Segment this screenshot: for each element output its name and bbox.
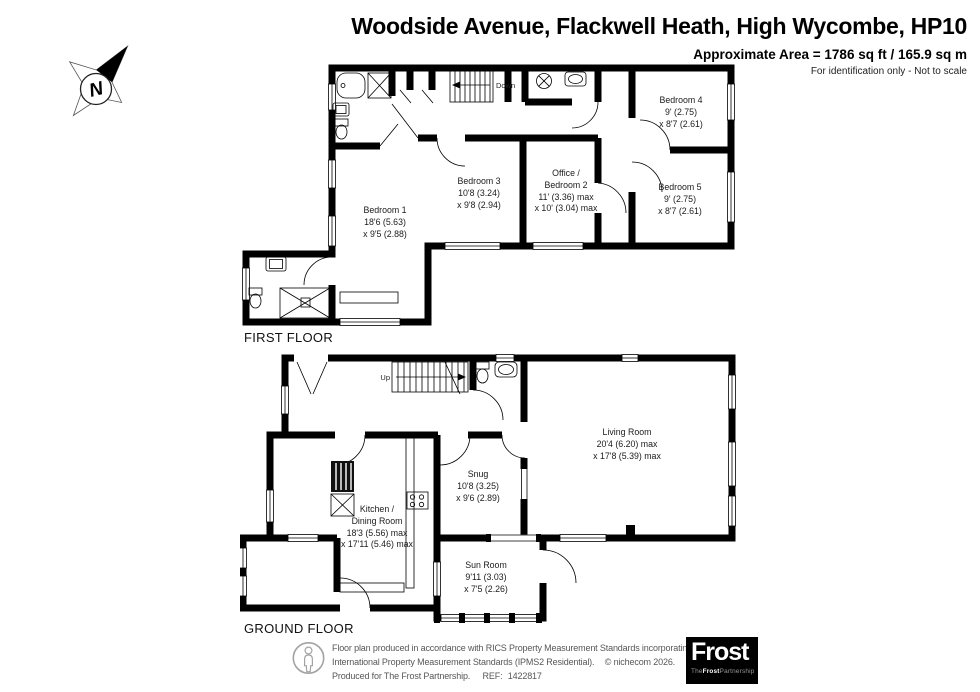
frost-logo-main: Frost [691, 639, 758, 665]
ground-floor-label: GROUND FLOOR [244, 621, 354, 636]
sunroom-door-gap [540, 550, 547, 583]
compass-rose: N [36, 32, 161, 140]
room-label-office-bedroom-2: Office /Bedroom 2 11' (3.36) maxx 10' (3… [516, 168, 616, 215]
footer-line-3: Produced for The Frost Partnership. REF:… [332, 669, 702, 683]
sunroom-bay-windows [434, 613, 542, 623]
kitchen-door-gap [340, 605, 370, 612]
room-label-snug: Snug 10'8 (3.25)x 9'6 (2.89) [428, 469, 528, 504]
living-room-pier [626, 525, 635, 535]
room-label-living-room: Living Room 20'4 (6.20) maxx 17'8 (5.39)… [577, 427, 677, 462]
room-label-kitchen-dining: Kitchen /Dining Room 18'3 (5.56) maxx 17… [327, 504, 427, 551]
frost-logo-sub: TheFrostPartnership [691, 668, 758, 675]
room-label-bedroom-1: Bedroom 1 18'6 (5.63)x 9'5 (2.88) [335, 205, 435, 240]
room-label-sun-room: Sun Room 9'11 (3.03)x 7'5 (2.26) [436, 560, 536, 595]
porch-opening [294, 354, 328, 362]
frost-partnership-logo: Frost TheFrostPartnership [686, 637, 758, 684]
room-label-bedroom-3: Bedroom 3 10'8 (3.24)x 9'8 (2.94) [429, 176, 529, 211]
footer-line-2: International Property Measurement Stand… [332, 655, 702, 669]
page-title: Woodside Avenue, Flackwell Heath, High W… [351, 13, 967, 40]
first-floor-label: FIRST FLOOR [244, 330, 333, 345]
person-scale-icon [291, 640, 327, 678]
footer-line-1: Floor plan produced in accordance with R… [332, 641, 702, 655]
room-label-bedroom-4: Bedroom 4 9' (2.75)x 8'7 (2.61) [631, 95, 731, 130]
snug-sunroom-opening [486, 534, 541, 542]
gf-stairs-label: Up [380, 373, 390, 382]
room-label-bedroom-5: Bedroom 5 9' (2.75)x 8'7 (2.61) [630, 182, 730, 217]
disclaimer-text: For identification only - Not to scale [811, 66, 967, 77]
floorplan-page: Woodside Avenue, Flackwell Heath, High W… [0, 0, 980, 692]
ff-stairs-label: Down [496, 81, 515, 90]
footer-disclaimer: Floor plan produced in accordance with R… [332, 641, 702, 683]
